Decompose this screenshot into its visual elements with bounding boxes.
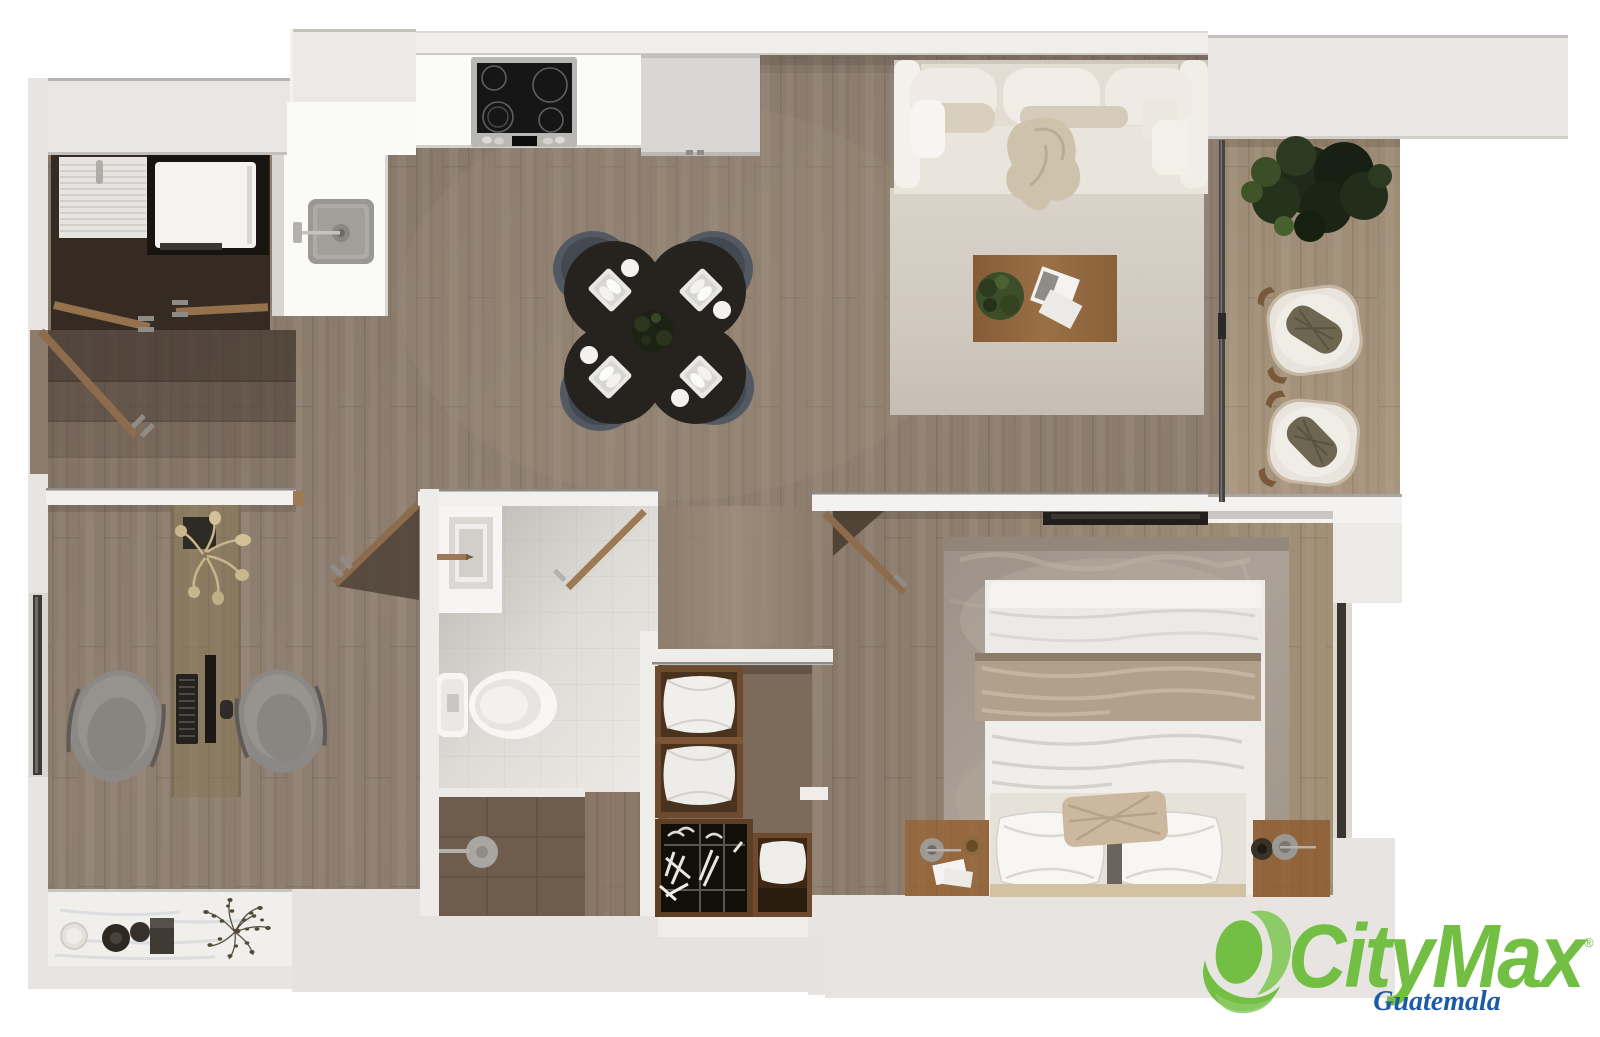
svg-text:®: ® <box>1584 935 1594 950</box>
svg-text:Guatemala: Guatemala <box>1373 986 1501 1017</box>
